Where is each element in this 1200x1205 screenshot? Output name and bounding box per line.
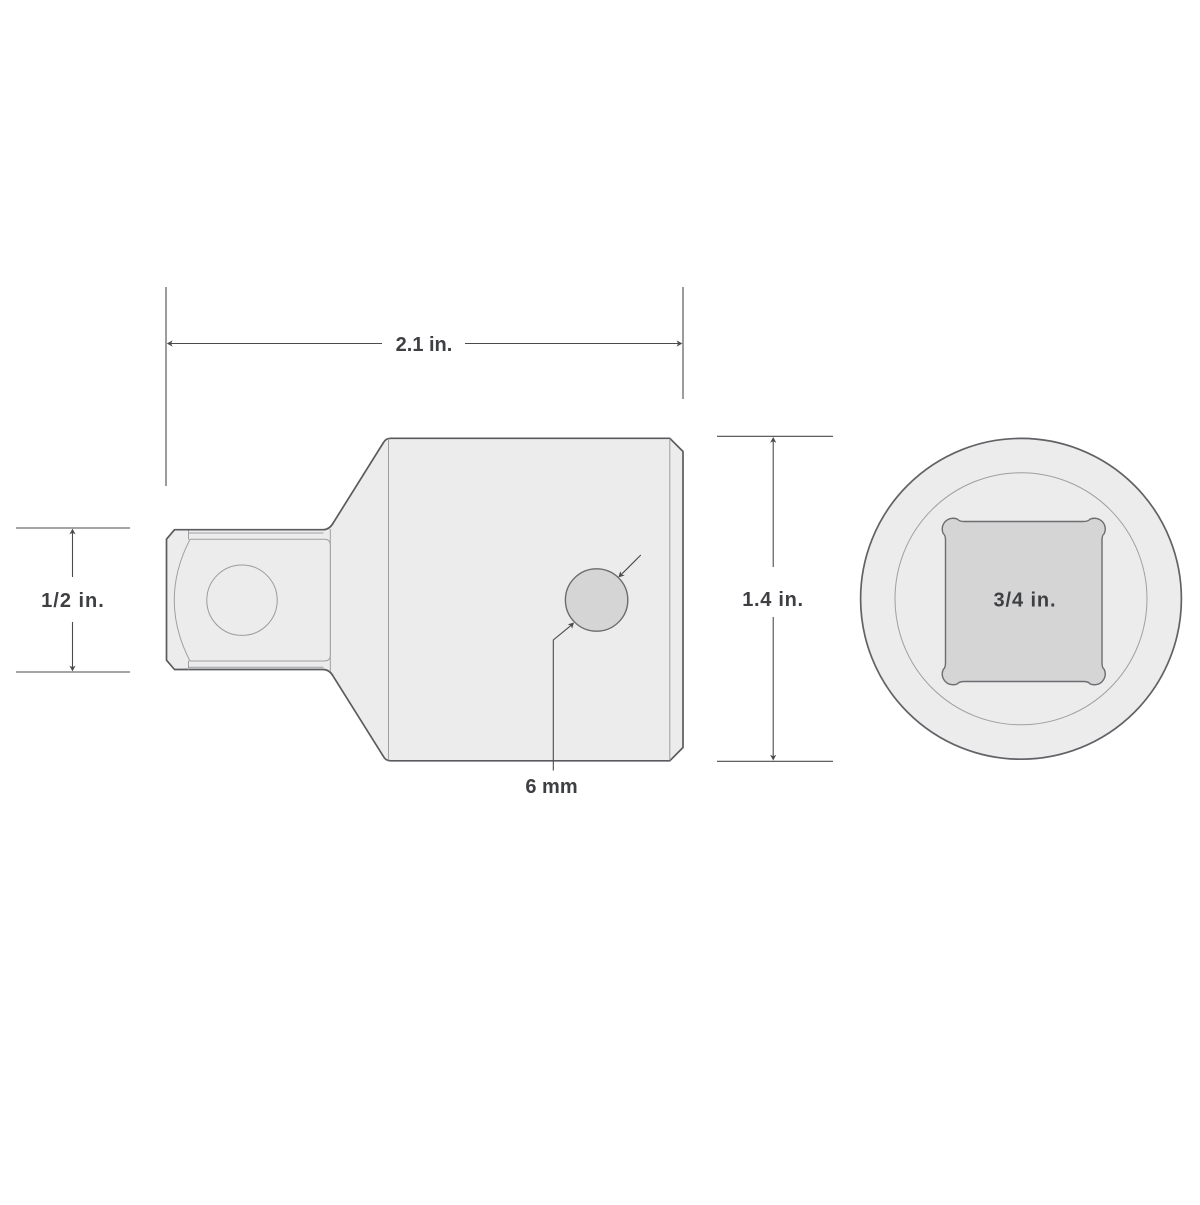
svg-text:1.4 in.: 1.4 in. [742,589,804,611]
svg-text:1/2 in.: 1/2 in. [41,590,105,612]
svg-text:2.1 in.: 2.1 in. [396,334,453,356]
svg-text:3/4 in.: 3/4 in. [994,590,1057,612]
svg-text:6 mm: 6 mm [525,776,577,798]
